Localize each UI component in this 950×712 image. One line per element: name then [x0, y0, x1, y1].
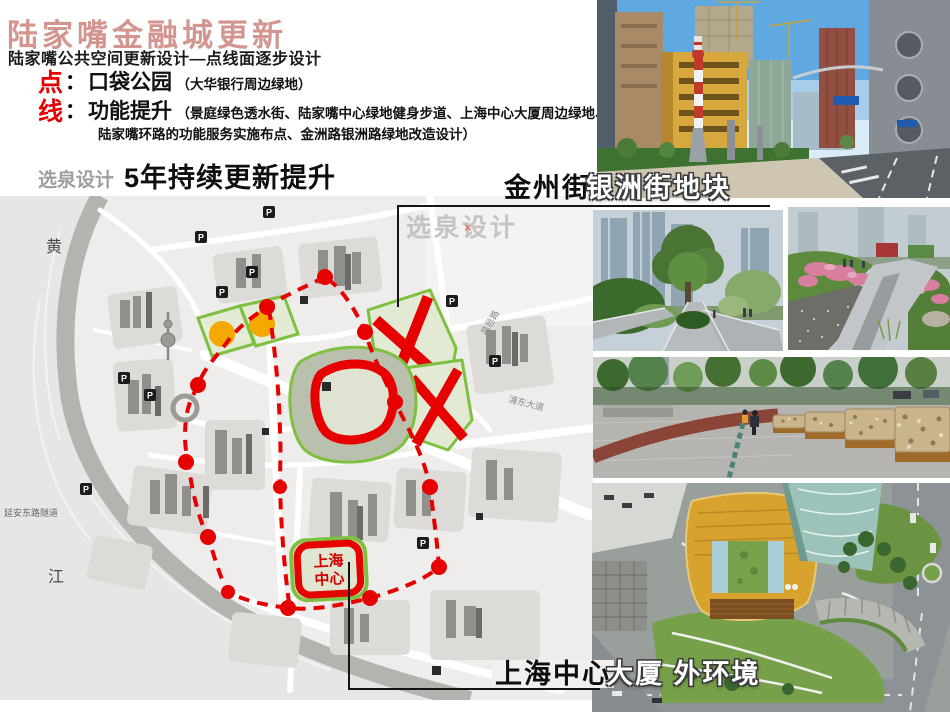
callout-line-bottom-horizontal: [348, 688, 600, 690]
garden-path-photo: [788, 207, 950, 350]
bullet-point-heading: 口袋公园: [88, 71, 172, 94]
bullet-line-text: 功能提升 （景庭绿色透水街、陆家嘴中心绿地健身步道、上海中心大厦周边绿地、 陆家…: [88, 100, 608, 145]
callout-line-top-horizontal: [397, 205, 770, 207]
map-label-shanghai-center-2: 中心: [314, 569, 345, 589]
bullet-point-detail: （大华银行周边绿地）: [176, 77, 311, 92]
bullet-list: 点 ： 口袋公园 （大华银行周边绿地） 线 ： 功能提升 （景庭绿色透水街、陆家…: [38, 70, 613, 148]
jinzhou-street-photo: [597, 0, 950, 198]
label-tower-environment: 大厦 外环境: [606, 660, 761, 688]
parking-p: P: [198, 233, 204, 243]
parking-p: P: [83, 485, 89, 495]
label-shanghai-center: 上海中心: [492, 660, 614, 688]
map-svg: 上海 中心 P P: [0, 196, 593, 700]
map-label-river-1: 黄: [46, 238, 62, 256]
slide-root: 陆家嘴金融城更新 陆家嘴公共空间更新设计—点线面逐步设计 点 ： 口袋公园 （大…: [0, 0, 950, 712]
bullet-marker-line: 线: [38, 99, 63, 125]
parking-p: P: [449, 297, 455, 307]
parking-p: P: [121, 374, 127, 384]
lujiazui-map-graphic: 上海 中心 P P: [0, 196, 593, 705]
pocket-park-dot-1: [209, 321, 235, 347]
bullet-colon: ：: [65, 70, 86, 95]
parking-p: P: [147, 391, 153, 401]
parking-p: P: [249, 268, 255, 278]
bullet-point-row: 点 ： 口袋公园 （大华银行周边绿地）: [38, 70, 613, 96]
tagline-text: 5年持续更新提升: [124, 156, 336, 195]
bullet-line-detail-2: 陆家嘴环路的功能服务实施布点、金洲路银洲路绿地改造设计）: [88, 125, 608, 145]
watermark-text: 选泉设计: [406, 214, 518, 242]
street-label-jinzhou: 金州街: [504, 174, 591, 202]
street-label-yinzhou: 银洲街地块: [586, 174, 731, 202]
map-label-shanghai-center-1: 上海: [313, 551, 344, 571]
brand-label: 选泉设计: [38, 165, 114, 195]
bullet-colon: ：: [65, 99, 86, 124]
bullet-line-row: 线 ： 功能提升 （景庭绿色透水街、陆家嘴中心绿地健身步道、上海中心大厦周边绿地…: [38, 99, 613, 145]
watermark-x-icon: ×: [464, 220, 472, 235]
parking-p: P: [219, 288, 225, 298]
parking-p: P: [266, 208, 272, 218]
bullet-line-detail-1: （景庭绿色透水街、陆家嘴中心绿地健身步道、上海中心大厦周边绿地、: [176, 106, 608, 121]
bullet-line-heading: 功能提升: [88, 100, 172, 123]
map-watermark: 选泉设计 ×: [406, 208, 518, 244]
parking-p: P: [492, 357, 498, 367]
parking-p: P: [420, 539, 426, 549]
bullet-marker-dot: 点: [38, 70, 63, 96]
callout-line-bottom-vertical: [348, 562, 350, 690]
page-subtitle: 陆家嘴公共空间更新设计—点线面逐步设计: [8, 45, 322, 69]
tagline-row: 选泉设计 5年持续更新提升: [38, 156, 336, 195]
callout-line-top-vertical: [397, 207, 399, 307]
gabion-bench-photo: [593, 357, 950, 478]
park-walkway-photo: [593, 210, 783, 351]
shanghai-center-block: 上海 中心: [290, 537, 367, 601]
map-label-tunnel: 延安东路隧道: [4, 507, 58, 518]
map-label-river-2: 江: [48, 568, 64, 586]
bullet-point-text: 口袋公园 （大华银行周边绿地）: [88, 71, 311, 96]
